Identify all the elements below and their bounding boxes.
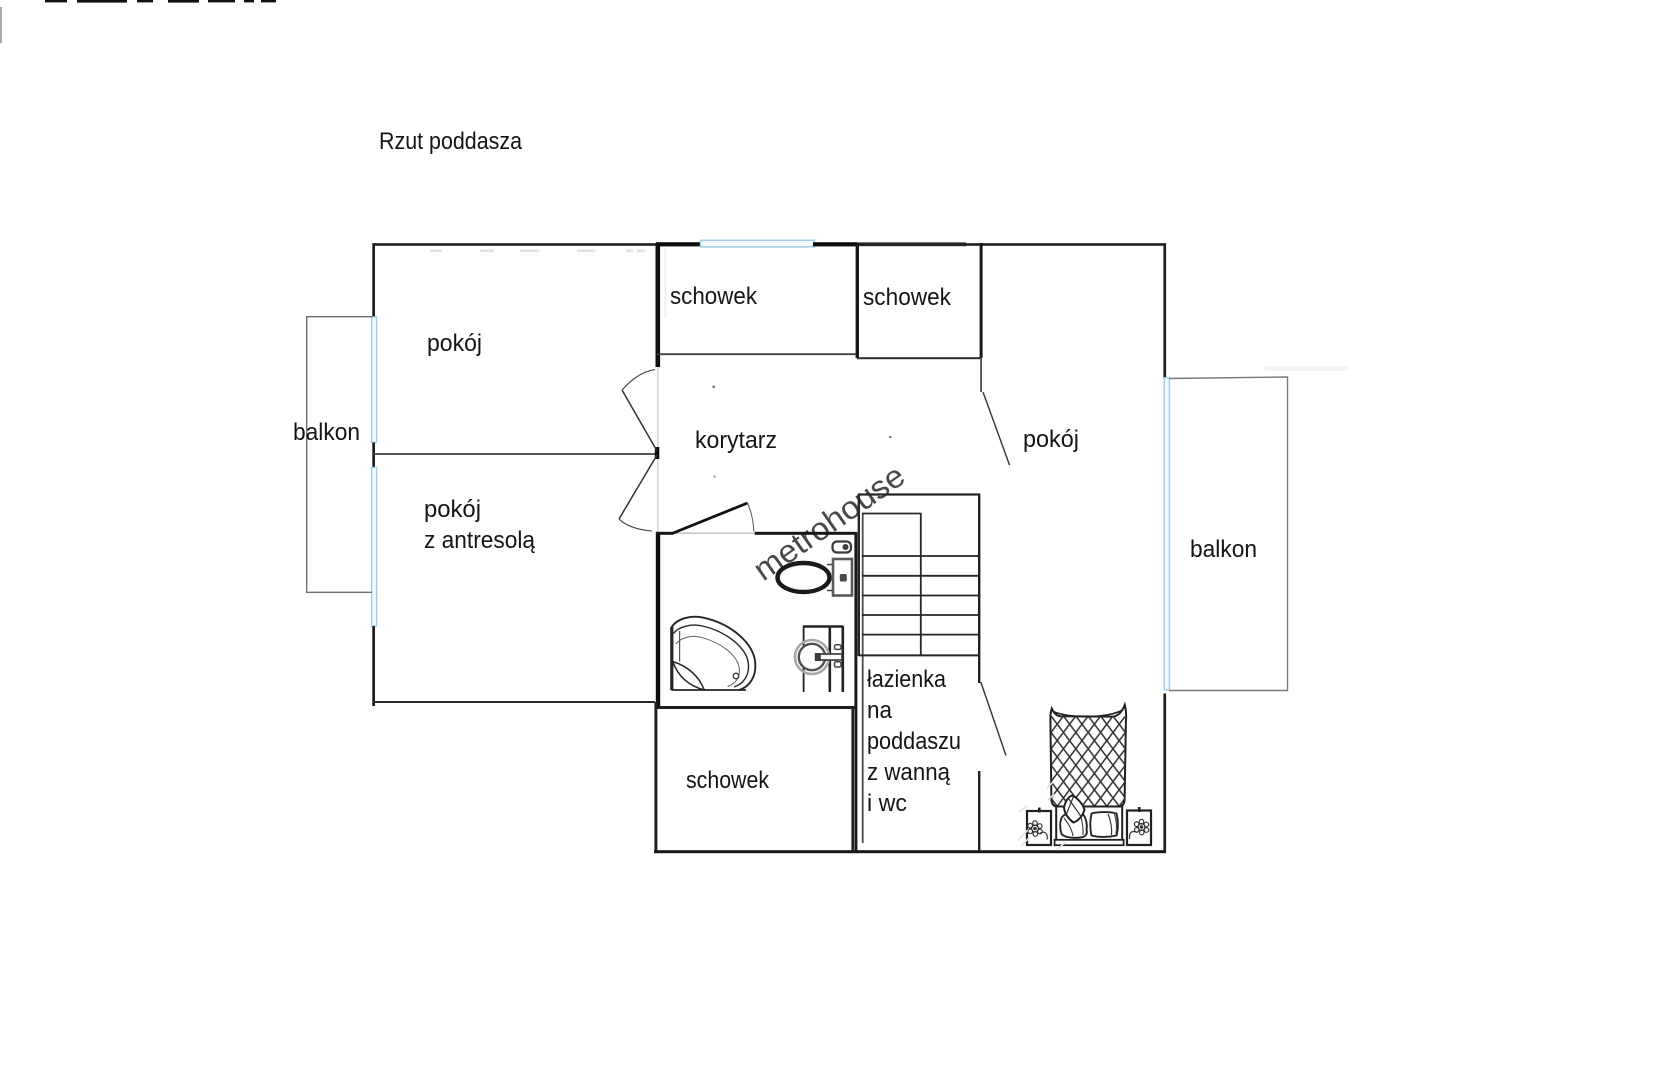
svg-text:Rzut poddasza: Rzut poddasza xyxy=(379,128,522,155)
svg-text:schowek: schowek xyxy=(670,283,758,310)
svg-text:balkon: balkon xyxy=(1190,536,1257,563)
svg-text:pokój: pokój xyxy=(424,496,481,523)
svg-text:pokój: pokój xyxy=(1023,426,1079,453)
svg-text:poddaszu: poddaszu xyxy=(867,728,961,755)
svg-text:pokój: pokój xyxy=(427,330,482,357)
svg-text:z wanną: z wanną xyxy=(867,759,950,786)
svg-text:i wc: i wc xyxy=(867,790,907,817)
svg-text:z antresolą: z antresolą xyxy=(424,527,535,554)
svg-text:schowek: schowek xyxy=(863,284,952,311)
svg-text:korytarz: korytarz xyxy=(695,427,777,454)
svg-text:schowek: schowek xyxy=(686,767,770,794)
svg-text:łazienka: łazienka xyxy=(867,666,946,693)
svg-text:na: na xyxy=(867,697,892,724)
svg-text:balkon: balkon xyxy=(293,419,360,446)
